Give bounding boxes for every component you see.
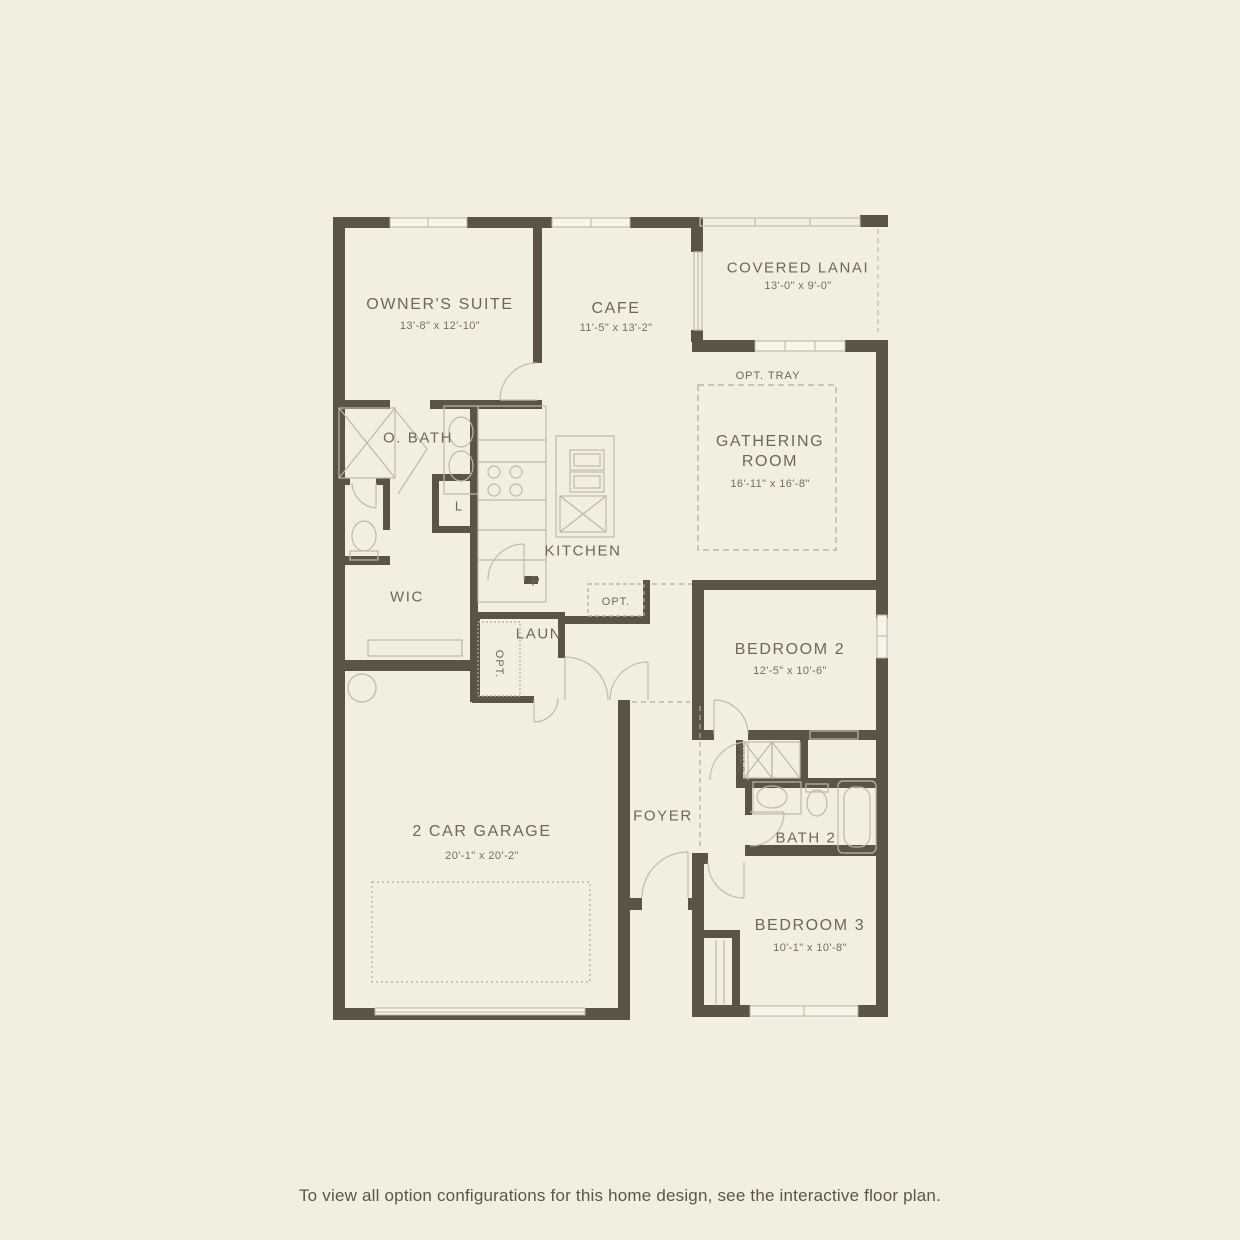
kitchen-island (556, 436, 614, 537)
linen-label: L (455, 499, 463, 514)
bath2-toilet (807, 790, 827, 816)
garage-label: 2 CAR GARAGE (412, 823, 551, 841)
kitchen-opt-label: OPT. (602, 596, 630, 608)
burner (488, 466, 500, 478)
floor-plan: OWNER'S SUITE 13'-8" x 12'-10" CAFE 11'-… (0, 0, 1240, 1240)
cafe-dims: 11'-5" x 13'-2" (580, 322, 653, 334)
owners-suite-dims: 13'-8" x 12'-10" (400, 320, 480, 332)
island-sink (570, 450, 604, 470)
gathering-room-label: GATHERING ROOM (690, 432, 850, 472)
burner (510, 466, 522, 478)
hall-door (565, 657, 608, 700)
garage-dims: 20'-1" x 20'-2" (445, 850, 519, 862)
floor-plan-drawing (0, 0, 1240, 1240)
laundry-door (534, 698, 558, 722)
covered-lanai-label: COVERED LANAI (727, 260, 870, 277)
pantry-door (488, 544, 524, 580)
owners-suite-door (500, 363, 537, 400)
entry-door (642, 852, 688, 898)
kitchen-label: KITCHEN (544, 543, 621, 560)
water-heater (348, 674, 376, 702)
burner (488, 484, 500, 496)
bedroom2-dims: 12'-5" x 10'-6" (753, 665, 827, 677)
bedroom2-door (714, 700, 748, 734)
bedroom3-label: BEDROOM 3 (755, 917, 865, 935)
bedroom3-dims: 10'-1" x 10'-8" (773, 942, 847, 954)
burner (510, 484, 522, 496)
wic-shelf (368, 640, 462, 656)
bath2-sink (757, 786, 787, 808)
hall-door (610, 662, 648, 700)
covered-lanai-dims: 13'-0" x 9'-0" (764, 280, 831, 292)
toilet (352, 521, 376, 551)
hvac-label: HVAC (736, 745, 746, 773)
laundry-label: LAUN (516, 626, 562, 643)
wc-door (352, 483, 376, 508)
gathering-room-dims: 16'-11" x 16'-8" (730, 478, 809, 490)
island-sink (570, 472, 604, 492)
owners-suite-label: OWNER'S SUITE (366, 296, 513, 314)
o-bath-label: O. BATH (383, 430, 453, 447)
opt-tray-label: OPT. TRAY (736, 370, 801, 382)
pantry-label: P (531, 574, 541, 589)
fixtures (339, 406, 876, 1004)
cafe-label: CAFE (591, 300, 640, 318)
wic-label: WIC (390, 589, 424, 606)
foyer-label: FOYER (633, 808, 693, 825)
bath2-label: BATH 2 (775, 830, 836, 847)
bedroom2-label: BEDROOM 2 (735, 641, 845, 659)
caption: To view all option configurations for th… (0, 1186, 1240, 1206)
bedroom3-door (708, 862, 744, 898)
laundry-opt-label: OPT. (493, 650, 505, 678)
